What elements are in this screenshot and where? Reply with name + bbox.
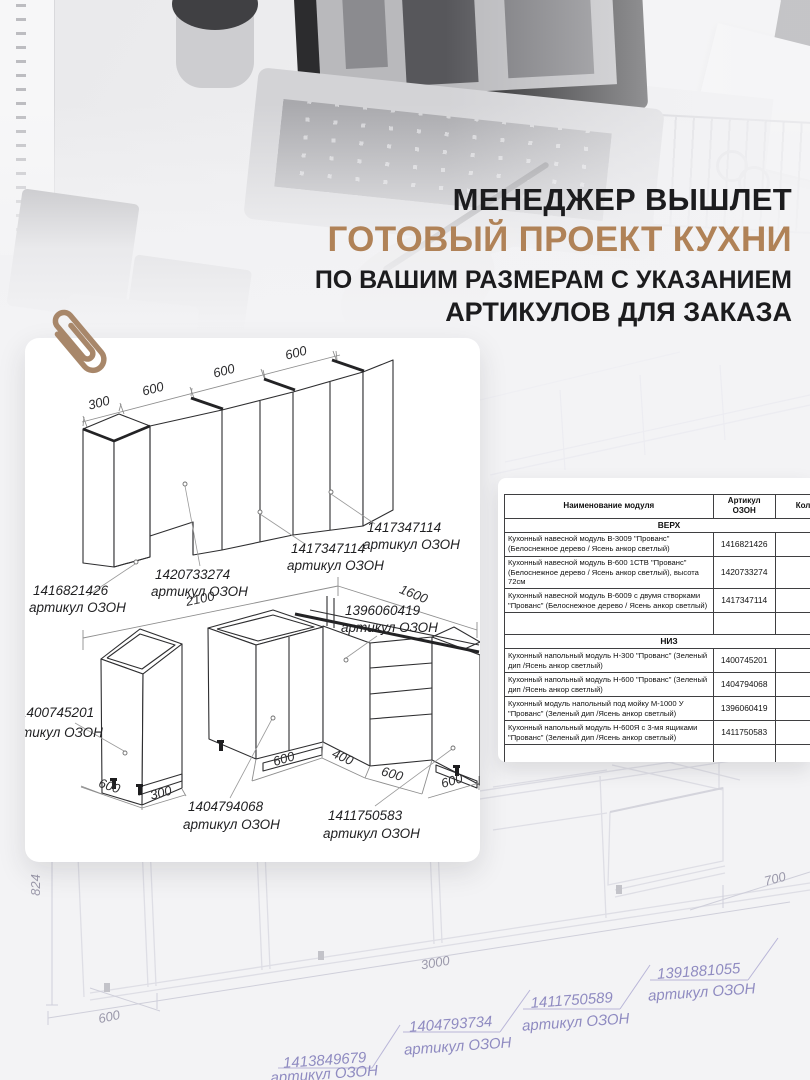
bg-callout4-label: артикул ОЗОН	[647, 980, 756, 1004]
module-qty	[775, 532, 810, 556]
kitchen-project-card: 300 600 600 600 1416821426 артикул ОЗОН …	[25, 338, 480, 862]
module-article: 1416821426	[713, 532, 775, 556]
headline-line2-accent: ГОТОВЫЙ ПРОЕКТ КУХНИ	[315, 220, 792, 259]
module-qty	[775, 697, 810, 721]
callout-article-num: 1396060419	[345, 603, 421, 618]
bg-callout2-label: артикул ОЗОН	[403, 1034, 512, 1058]
col-header-qty: Кол-	[775, 495, 810, 519]
callout-article-num: 1420733274	[155, 567, 230, 582]
col-header-name: Наименование модуля	[505, 495, 714, 519]
module-name: Кухонный модуль напольный под мойку М-10…	[505, 697, 714, 721]
section-bottom: НИЗ	[505, 635, 810, 649]
module-article: 1400745201	[713, 649, 775, 673]
module-qty	[775, 673, 810, 697]
module-article: 1396060419	[713, 697, 775, 721]
module-name: Кухонный навесной модуль В-3009 "Прованс…	[505, 532, 714, 556]
empty-row	[505, 745, 810, 762]
callout-article-num: 1417347114	[291, 541, 365, 556]
spec-table-card: Наименование модуля Артикул ОЗОН Кол- ВЕ…	[498, 478, 810, 762]
module-article: 1417347114	[713, 589, 775, 613]
dim-600: 600	[211, 360, 237, 380]
table-row: Кухонный напольный модуль Н-600 "Прованс…	[505, 673, 810, 697]
table-row: Кухонный напольный модуль Н-300 "Прованс…	[505, 649, 810, 673]
dim-600: 600	[283, 342, 309, 362]
callout-article-label: тикул ОЗОН	[25, 725, 103, 740]
module-article: 1420733274	[713, 556, 775, 589]
module-name: Кухонный навесной модуль В-6009 с двумя …	[505, 589, 714, 613]
bg-dim-3000: 3000	[420, 953, 452, 973]
table-row: Кухонный напольный модуль Н-600Я с 3-мя …	[505, 721, 810, 745]
callout-article-label: артикул ОЗОН	[363, 537, 460, 552]
section-top: ВЕРХ	[505, 518, 810, 532]
module-name: Кухонный навесной модуль В-600 1СТВ "Про…	[505, 556, 714, 589]
callout-article-label: артикул ОЗОН	[323, 826, 420, 841]
bg-callout3-label: артикул ОЗОН	[521, 1010, 630, 1034]
paperclip-icon	[30, 294, 130, 394]
callout-article-label: артикул ОЗОН	[183, 817, 280, 832]
dim-600: 600	[380, 763, 406, 784]
bg-callout4-num: 1391881055	[656, 960, 741, 983]
faint-sketch-lines	[480, 330, 810, 480]
spec-table: Наименование модуля Артикул ОЗОН Кол- ВЕ…	[504, 494, 810, 762]
bg-dim-600: 600	[97, 1007, 122, 1026]
bg-dim-824: 824	[28, 874, 43, 896]
callout-article-label: артикул ОЗОН	[341, 620, 438, 635]
callout-article-label: артикул ОЗОН	[29, 600, 126, 615]
dim-600: 600	[140, 378, 166, 398]
module-name: Кухонный напольный модуль Н-600 "Прованс…	[505, 673, 714, 697]
module-name: Кухонный напольный модуль Н-300 "Прованс…	[505, 649, 714, 673]
kitchen-drawings: 300 600 600 600 1416821426 артикул ОЗОН …	[25, 338, 480, 862]
col-header-article: Артикул ОЗОН	[713, 495, 775, 519]
callout-article-num: 1416821426	[33, 583, 109, 598]
callout-article-num: 1411750583	[328, 808, 403, 823]
headline-line3: ПО ВАШИМ РАЗМЕРАМ С УКАЗАНИЕМ	[315, 266, 792, 294]
headline-line4: АРТИКУЛОВ ДЛЯ ЗАКАЗА	[315, 297, 792, 327]
headline: МЕНЕДЖЕР ВЫШЛЕТ ГОТОВЫЙ ПРОЕКТ КУХНИ ПО …	[315, 183, 792, 327]
callout-article-num: 1417347114	[367, 520, 441, 535]
module-article: 1411750583	[713, 721, 775, 745]
module-name: Кухонный напольный модуль Н-600Я с 3-мя …	[505, 721, 714, 745]
module-article: 1404794068	[713, 673, 775, 697]
bg-dim-700: 700	[763, 869, 788, 889]
callout-article-num: 1404794068	[188, 799, 264, 814]
bg-callout3-num: 1411750589	[530, 989, 614, 1012]
table-row: Кухонный навесной модуль В-6009 с двумя …	[505, 589, 810, 613]
callout-article-num: 1400745201	[25, 705, 94, 720]
headline-line1: МЕНЕДЖЕР ВЫШЛЕТ	[315, 183, 792, 218]
module-qty	[775, 556, 810, 589]
table-row: Кухонный навесной модуль В-3009 "Прованс…	[505, 532, 810, 556]
table-row: Кухонный навесной модуль В-600 1СТВ "Про…	[505, 556, 810, 589]
callout-article-label: артикул ОЗОН	[287, 558, 384, 573]
table-row: Кухонный модуль напольный под мойку М-10…	[505, 697, 810, 721]
module-qty	[775, 721, 810, 745]
dim-300: 300	[86, 392, 112, 412]
module-qty	[775, 589, 810, 613]
module-qty	[775, 649, 810, 673]
empty-row	[505, 613, 810, 635]
